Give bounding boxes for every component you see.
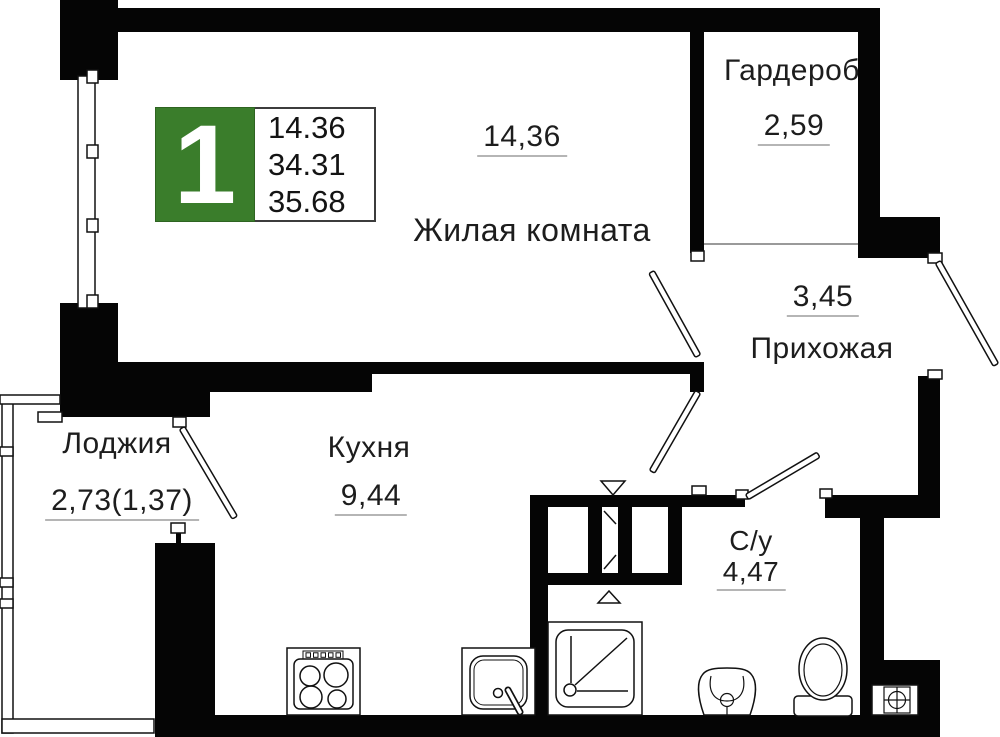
unit-area-total: 35.68	[268, 183, 374, 220]
unit-badge: 1 14.36 34.31 35.68	[155, 107, 376, 222]
unit-area-list: 14.36 34.31 35.68	[255, 107, 376, 222]
room-label-bathroom: С/у	[729, 525, 773, 557]
room-label-hallway: Прихожая	[750, 332, 893, 366]
vent-grille-icon	[872, 685, 918, 715]
shower-icon	[548, 622, 642, 715]
living-room-window	[78, 70, 98, 308]
room-area-hallway: 3,45	[787, 280, 859, 317]
unit-area-room: 14.36	[268, 109, 374, 146]
room-label-loggia: Лоджия	[62, 427, 171, 461]
unit-area-living-total: 34.31	[268, 146, 374, 183]
floor-plan-drawing	[0, 0, 1000, 737]
kitchen-sink-icon	[462, 648, 535, 715]
door-kitchen	[649, 391, 700, 474]
door-bathroom	[745, 452, 819, 499]
room-area-kitchen: 9,44	[335, 479, 407, 516]
duct-shaft	[530, 495, 745, 585]
door-entrance	[935, 261, 998, 367]
unit-number: 1	[155, 107, 255, 222]
room-label-wardrobe: Гардероб	[724, 54, 860, 88]
room-area-living: 14,36	[477, 120, 567, 157]
room-label-living: Жилая комната	[413, 212, 651, 249]
room-label-kitchen: Кухня	[328, 431, 411, 465]
room-area-bathroom: 4,47	[717, 556, 786, 591]
toilet-icon	[794, 638, 852, 716]
floor-plan: 14,36 Жилая комната Гардероб 2,59 3,45 П…	[0, 0, 1000, 737]
stove-icon	[287, 648, 360, 715]
door-living-room	[649, 271, 701, 358]
room-area-wardrobe: 2,59	[758, 109, 830, 146]
washbasin-icon	[699, 668, 756, 715]
room-area-loggia: 2,73(1,37)	[45, 484, 199, 521]
